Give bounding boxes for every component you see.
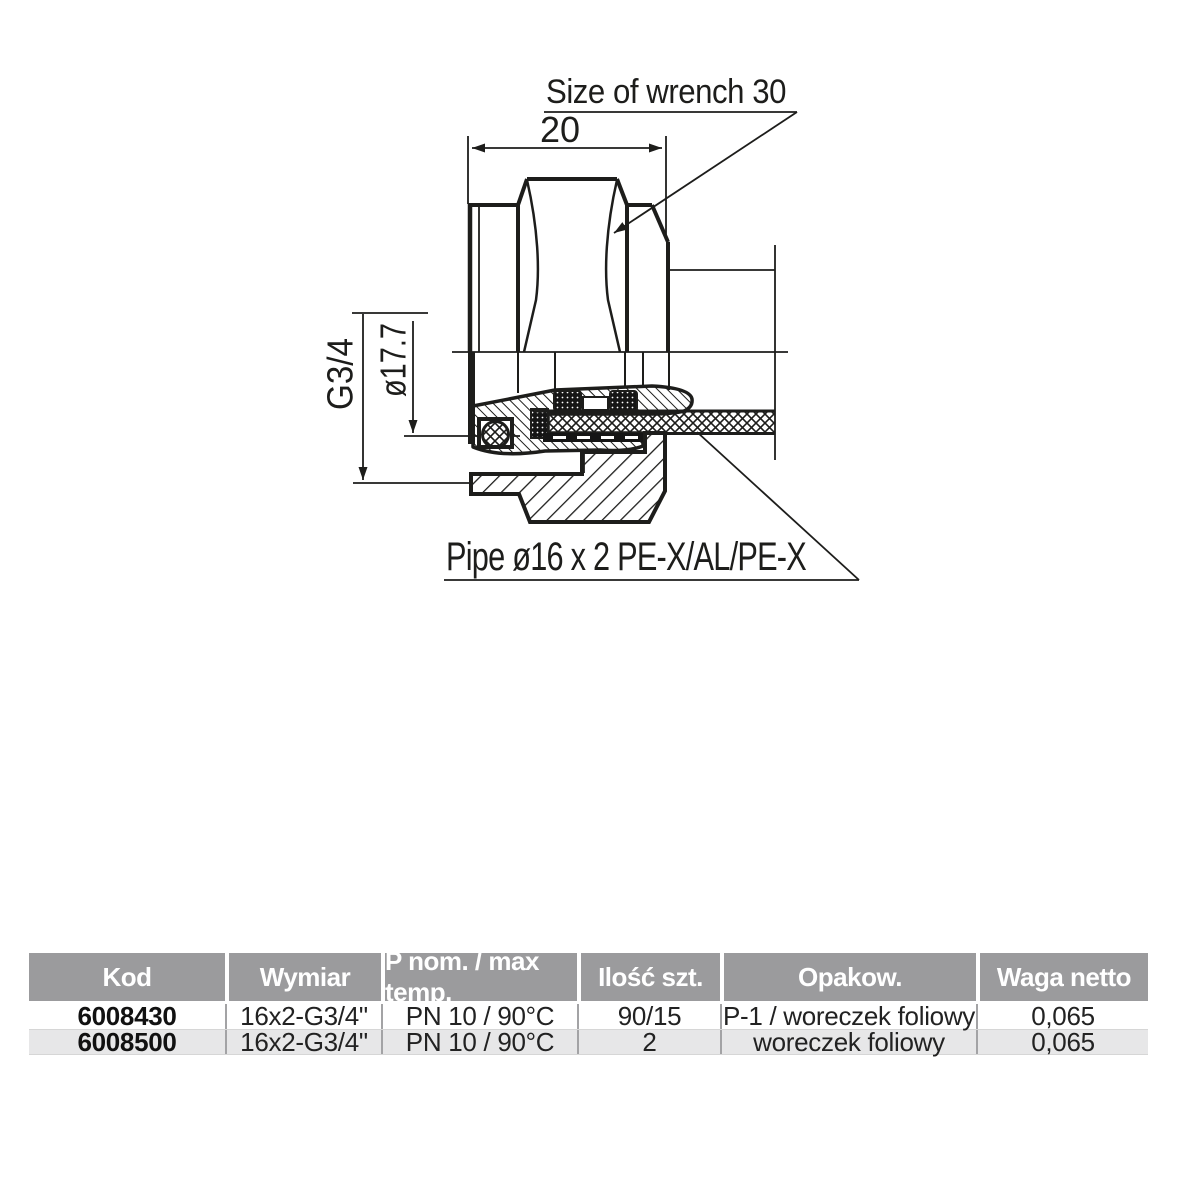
header-ilosc-szt: Ilość szt. <box>577 953 720 1001</box>
header-pnom-maxtemp: P nom. / max temp. <box>381 953 577 1001</box>
seal-right <box>610 391 637 411</box>
cell-ilosc: 90/15 <box>577 1004 720 1029</box>
diameter-label: ø17.7 <box>373 323 414 397</box>
header-kod: Kod <box>29 953 225 1001</box>
cell-waga: 0,065 <box>976 1004 1148 1029</box>
fitting-nut-outline <box>468 179 668 352</box>
width-dimension-label: 20 <box>540 109 580 150</box>
fitting-section <box>471 352 775 522</box>
seal-left <box>554 391 581 411</box>
cell-wymiar: 16x2-G3/4" <box>225 1030 381 1054</box>
technical-drawing: Size of wrench 30 20 G3/4 ø17.7 Pipe ø16… <box>0 0 1181 940</box>
header-waga-netto: Waga netto <box>976 953 1148 1001</box>
page: { "drawing": { "labels": { "wrench": "Si… <box>0 0 1181 1181</box>
cell-ilosc: 2 <box>577 1030 720 1054</box>
table-row: 6008430 16x2-G3/4" PN 10 / 90°C 90/15 P-… <box>29 1004 1148 1030</box>
table-header-row: Kod Wymiar P nom. / max temp. Ilość szt.… <box>29 953 1148 1001</box>
table-row: 6008500 16x2-G3/4" PN 10 / 90°C 2 worecz… <box>29 1030 1148 1055</box>
cell-opakow: P-1 / woreczek foliowy <box>720 1004 976 1029</box>
pipe-spec-label: Pipe ø16 x 2 PE-X/AL/PE-X <box>446 535 806 579</box>
cell-opakow: woreczek foliowy <box>720 1030 976 1054</box>
cell-pnom: PN 10 / 90°C <box>381 1030 577 1054</box>
wrench-size-label: Size of wrench 30 <box>546 73 786 111</box>
cell-wymiar: 16x2-G3/4" <box>225 1004 381 1029</box>
cell-kod: 6008500 <box>29 1030 225 1054</box>
header-opakow: Opakow. <box>720 953 976 1001</box>
product-table: Kod Wymiar P nom. / max temp. Ilość szt.… <box>29 953 1148 1055</box>
pipe-section <box>548 412 775 434</box>
header-wymiar: Wymiar <box>225 953 381 1001</box>
cell-pnom: PN 10 / 90°C <box>381 1004 577 1029</box>
cell-kod: 6008430 <box>29 1004 225 1029</box>
cell-waga: 0,065 <box>976 1030 1148 1054</box>
seal-gap <box>583 397 608 410</box>
oring-section <box>483 422 509 448</box>
thread-size-label: G3/4 <box>320 338 361 410</box>
